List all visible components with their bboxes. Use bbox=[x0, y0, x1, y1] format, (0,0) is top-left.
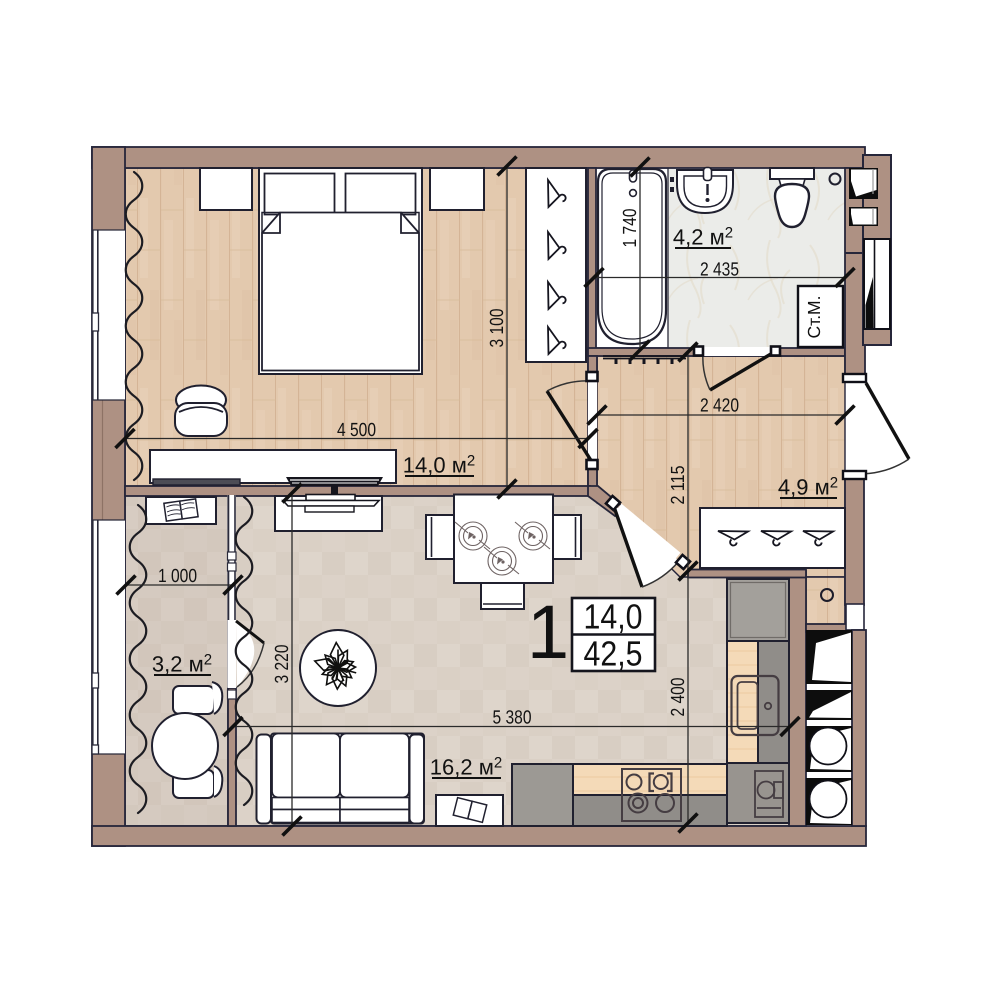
svg-text:1: 1 bbox=[527, 590, 569, 675]
svg-text:2 435: 2 435 bbox=[700, 260, 739, 281]
svg-text:2 115: 2 115 bbox=[668, 466, 689, 505]
svg-text:14,0 м2: 14,0 м2 bbox=[403, 453, 475, 478]
svg-text:2 420: 2 420 bbox=[700, 396, 739, 417]
svg-text:4,2 м2: 4,2 м2 bbox=[673, 225, 733, 250]
svg-text:5 380: 5 380 bbox=[493, 708, 532, 729]
svg-text:Ст.М.: Ст.М. bbox=[804, 295, 824, 338]
svg-text:42,5: 42,5 bbox=[584, 635, 643, 674]
svg-text:4,9 м2: 4,9 м2 bbox=[778, 475, 838, 500]
svg-text:4 500: 4 500 bbox=[337, 420, 376, 441]
svg-text:16,2 м2: 16,2 м2 bbox=[430, 755, 502, 780]
svg-text:1 740: 1 740 bbox=[620, 209, 641, 248]
svg-text:3,2 м2: 3,2 м2 bbox=[152, 652, 212, 677]
svg-text:1 000: 1 000 bbox=[158, 566, 197, 587]
svg-text:3 220: 3 220 bbox=[272, 645, 293, 684]
svg-text:3 100: 3 100 bbox=[487, 309, 508, 348]
svg-text:14,0: 14,0 bbox=[584, 598, 643, 637]
svg-text:2 400: 2 400 bbox=[668, 678, 689, 717]
